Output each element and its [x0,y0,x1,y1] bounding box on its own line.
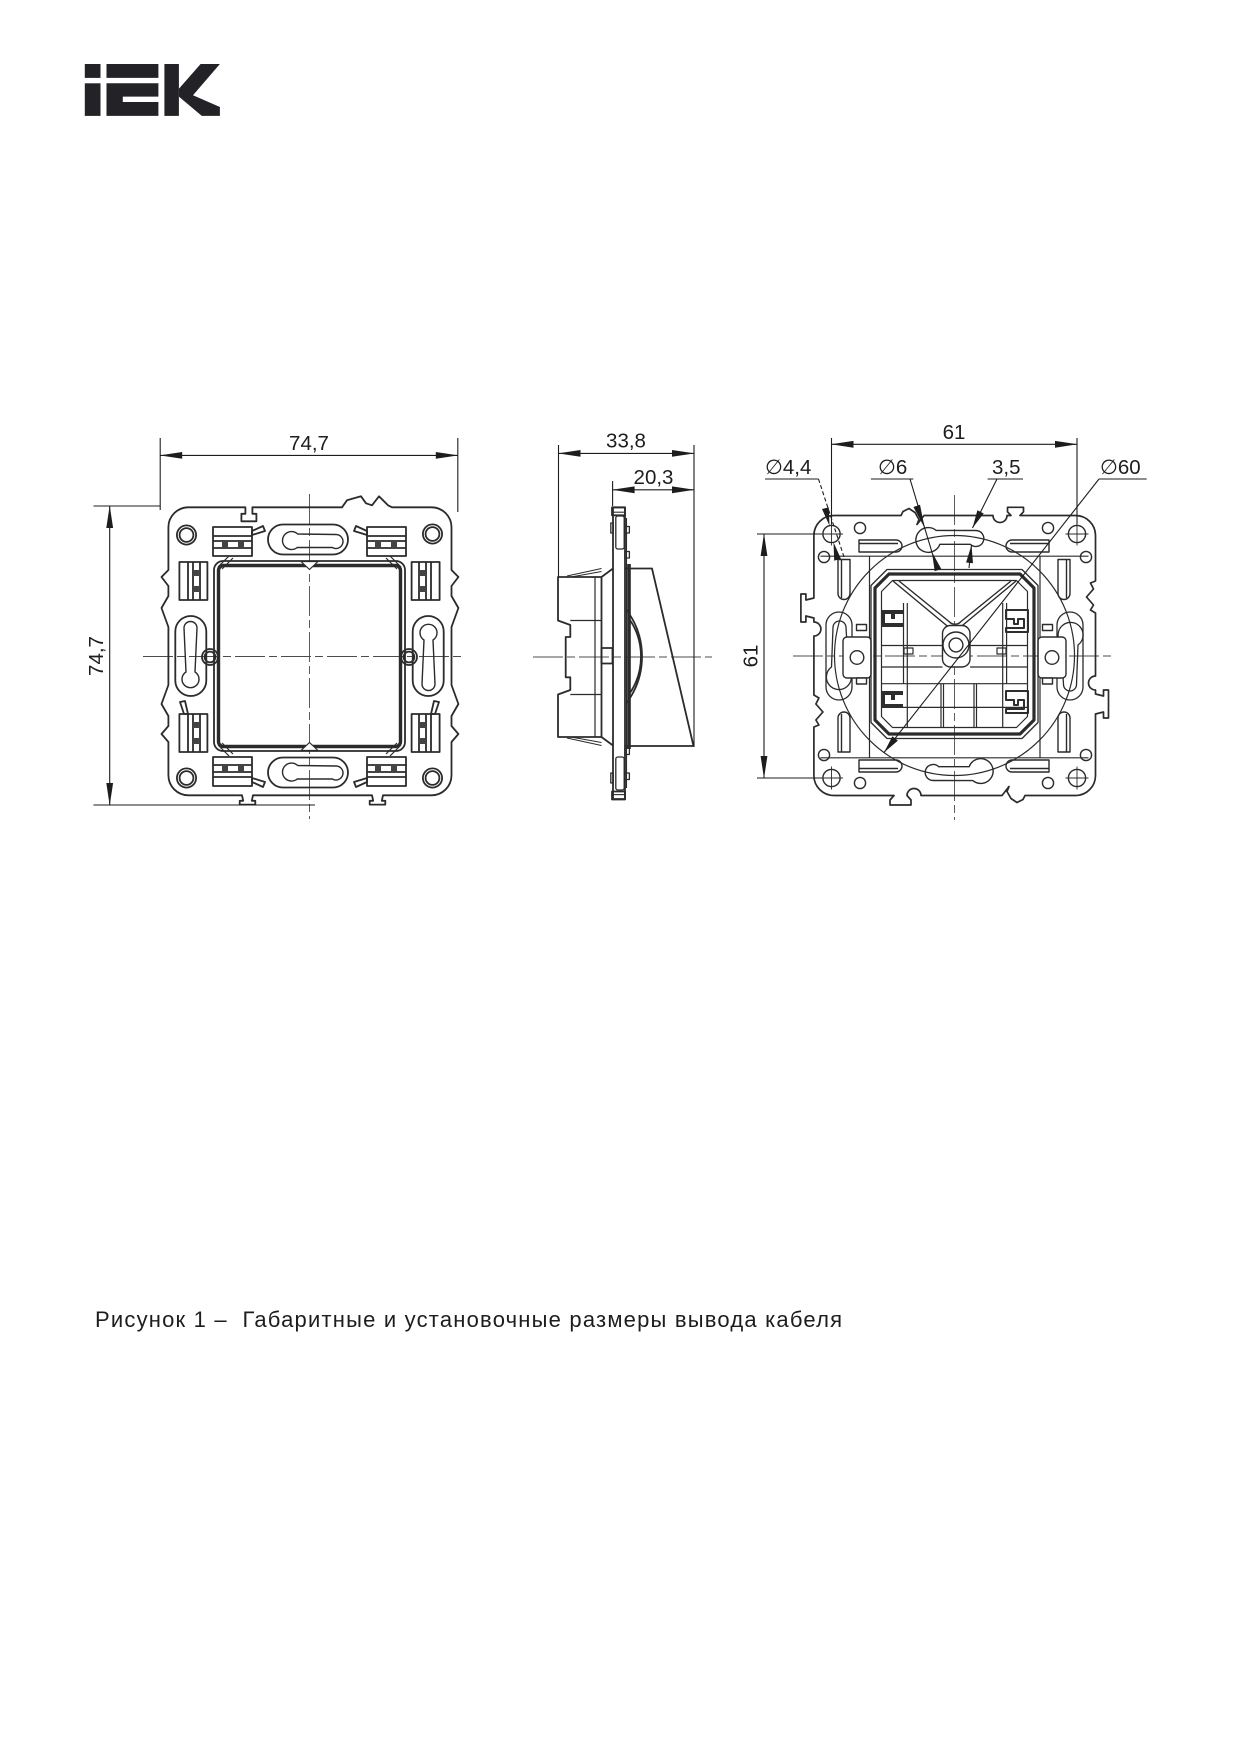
svg-text:∅6: ∅6 [878,456,907,479]
svg-text:∅60: ∅60 [1100,456,1141,479]
svg-text:3,5: 3,5 [992,456,1021,479]
svg-text:61: 61 [740,645,763,668]
svg-text:Рисунок 1 – Габаритные и уста: Рисунок 1 – Габаритные и установочные ра… [95,1307,843,1332]
svg-text:74,7: 74,7 [85,636,108,676]
svg-text:61: 61 [943,421,966,444]
svg-text:20,3: 20,3 [634,466,674,489]
svg-text:∅4,4: ∅4,4 [765,456,811,479]
svg-text:74,7: 74,7 [289,432,329,455]
svg-text:33,8: 33,8 [606,430,646,453]
